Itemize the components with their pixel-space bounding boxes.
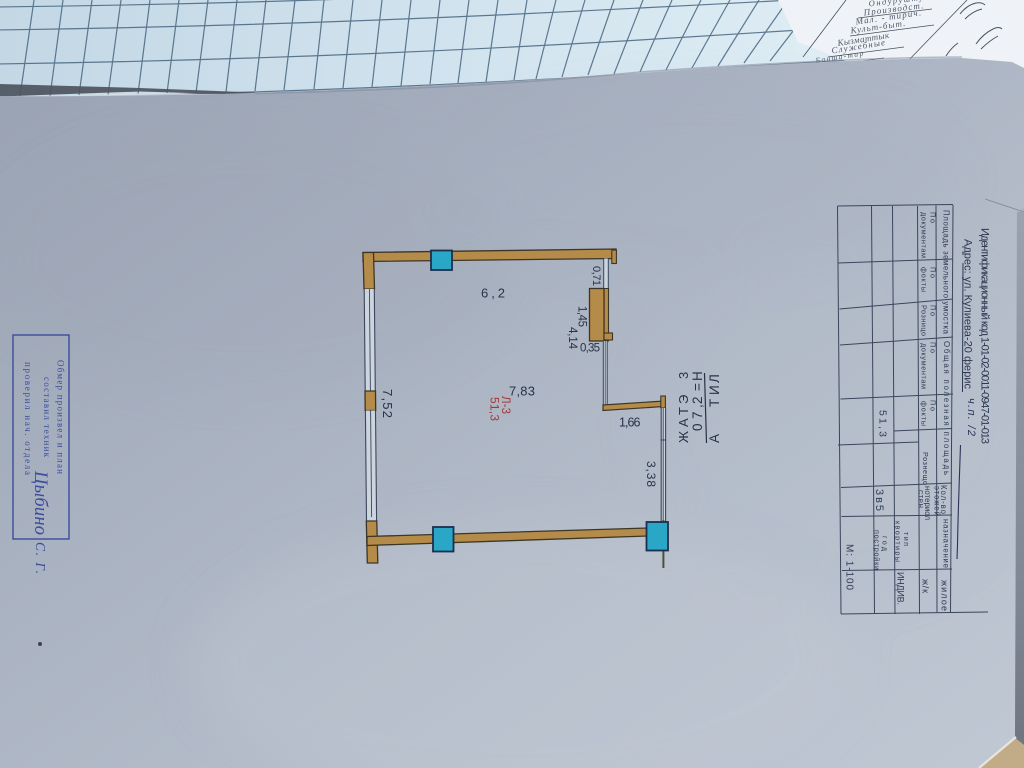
svg-text:3,38: 3,38 <box>644 461 658 487</box>
svg-text:Идентификационный код 1-01-02-: Идентификационный код 1-01-02-0011-0947-… <box>979 228 991 444</box>
svg-text:7,52: 7,52 <box>380 389 395 418</box>
svg-text:стен: стен <box>917 490 926 508</box>
svg-text:Площадь земельного умостка: Площадь земельного умостка <box>942 210 951 335</box>
svg-text:Цыбино: Цыбино <box>30 470 50 535</box>
svg-text:Н: Н <box>690 371 705 381</box>
svg-text:6,2: 6,2 <box>481 286 505 301</box>
svg-text:1,45: 1,45 <box>576 306 588 327</box>
svg-text:0,35: 0,35 <box>580 343 600 355</box>
svg-text:Ж: Ж <box>676 431 691 443</box>
svg-text:3в5: 3в5 <box>873 489 885 511</box>
svg-text:постройки: постройки <box>873 530 882 570</box>
svg-text:51,3: 51,3 <box>488 397 502 421</box>
svg-text:фокты: фокты <box>920 267 929 292</box>
svg-text:документам: документам <box>920 343 929 389</box>
svg-text:4,14: 4,14 <box>566 327 578 350</box>
svg-text:М: 1-100: М: 1-100 <box>844 544 855 590</box>
svg-text:3: 3 <box>676 372 691 379</box>
svg-text:Т: Т <box>707 399 722 407</box>
svg-text:фокты: фокты <box>920 401 929 426</box>
svg-text:=: = <box>690 383 705 391</box>
svg-text:51,3: 51,3 <box>877 410 889 437</box>
svg-text:документам: документам <box>920 212 929 258</box>
svg-text:квортиры: квортиры <box>894 521 903 562</box>
svg-text:назначение: назначение <box>942 519 951 568</box>
svg-text:0,71: 0,71 <box>590 266 602 286</box>
svg-text:ИНДИВ.: ИНДИВ. <box>896 572 906 605</box>
svg-text:Рознещо: Рознещо <box>921 452 930 485</box>
svg-text:этожей: этожей <box>933 486 942 516</box>
svg-text:И: И <box>707 385 722 395</box>
svg-text:7,83: 7,83 <box>509 384 535 399</box>
svg-text:1,66: 1,66 <box>619 416 641 430</box>
svg-text:2: 2 <box>690 396 705 404</box>
svg-text:ч.п. /2: ч.п. /2 <box>965 398 977 436</box>
svg-text:ж/к: ж/к <box>921 579 931 593</box>
svg-text:Л: Л <box>707 374 722 383</box>
svg-text:жилое: жилое <box>940 580 950 611</box>
svg-text:Розницо: Розницо <box>920 305 929 336</box>
svg-text:Т: Т <box>676 407 691 415</box>
svg-text:,: , <box>690 404 705 408</box>
svg-text:Э: Э <box>676 395 691 404</box>
svg-text:А: А <box>707 434 722 443</box>
svg-text:0: 0 <box>690 423 705 431</box>
svg-text:7: 7 <box>690 411 705 419</box>
svg-text:А: А <box>676 418 691 427</box>
